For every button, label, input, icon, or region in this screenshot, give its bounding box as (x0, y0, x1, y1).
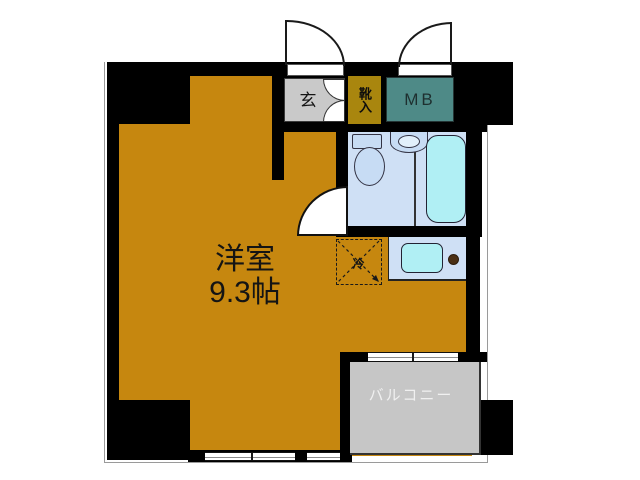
wall-top-right-block (450, 62, 513, 125)
bottom-window-right-symbol (307, 452, 340, 461)
floor-plan: 玄 靴入 MB 冷 バルコニー (0, 0, 640, 480)
refrigerator-space-label: 冷 (337, 255, 380, 272)
wall-top-left-notch (107, 62, 190, 124)
kitchen-sink-icon (401, 243, 443, 273)
wall-bottom-left-notch (107, 400, 190, 460)
wall-balcony-window-right-pier (458, 352, 487, 362)
balcony-window-tick (412, 353, 414, 361)
shoe-cabinet-label: 靴入 (358, 87, 371, 113)
balcony-label: バルコニー (352, 384, 470, 405)
entrance-door-swing-icon (287, 20, 345, 66)
main-room-label: 洋室 9.3帖 (150, 243, 340, 309)
wall-balcony-left (340, 352, 350, 462)
refrigerator-space: 冷 (336, 239, 382, 285)
meter-box-label: MB (404, 90, 436, 110)
main-room-area: 9.3帖 (150, 276, 340, 309)
bathtub-icon (426, 135, 466, 223)
wall-entrance-room-divider (272, 76, 284, 180)
bottom-window-pier (295, 450, 307, 462)
washbasin-bowl-icon (398, 135, 420, 148)
wall-balcony-window-left-pier (350, 352, 368, 362)
main-room-name: 洋室 (150, 243, 340, 276)
meter-box: MB (386, 77, 454, 122)
wall-right (466, 230, 480, 360)
entrance-label: 玄 (286, 86, 330, 111)
bottom-window-left-symbol (205, 452, 295, 461)
toilet-bowl-icon (354, 147, 385, 186)
bottom-window-tick (251, 453, 253, 460)
balcony-floor (350, 362, 481, 455)
burner-icon (448, 254, 459, 265)
meter-box-door-swing-icon (398, 22, 452, 67)
shoe-cabinet: 靴入 (348, 76, 381, 124)
